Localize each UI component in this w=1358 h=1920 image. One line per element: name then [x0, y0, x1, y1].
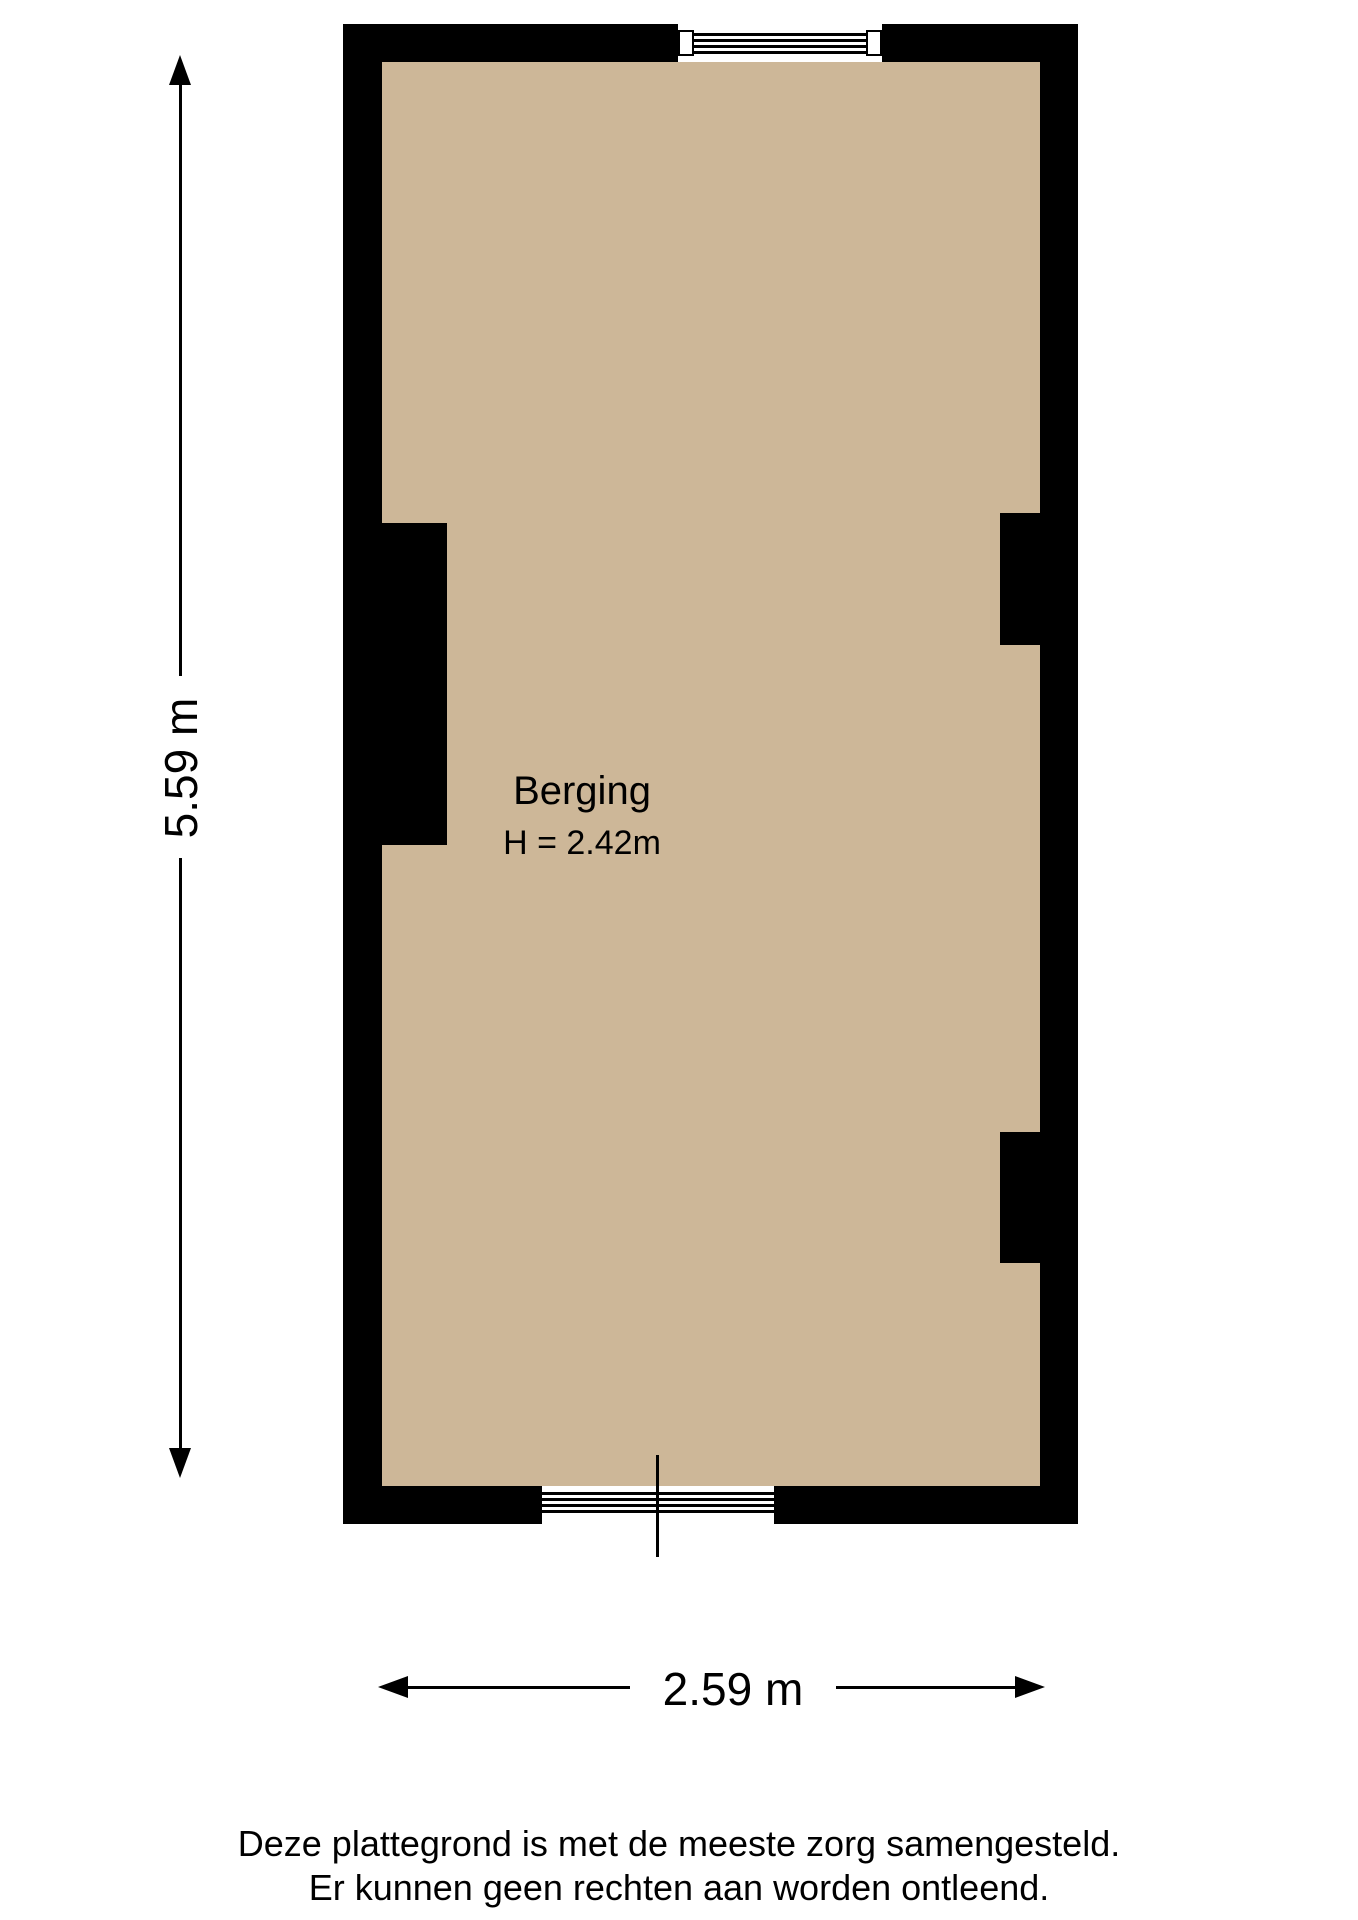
- window-pane-line: [694, 51, 866, 54]
- wall-pier-right-lower: [1000, 1132, 1078, 1263]
- room-label-group: Berging H = 2.42m: [432, 768, 732, 863]
- dim-arrow-down-icon: [169, 1448, 191, 1478]
- disclaimer: Deze plattegrond is met de meeste zorg s…: [0, 1822, 1358, 1910]
- window-pane-line: [694, 39, 866, 42]
- wall-pier-right-upper: [1000, 513, 1078, 645]
- dim-label-vertical: 5.59 m: [154, 698, 208, 839]
- disclaimer-line2: Er kunnen geen rechten aan worden ontlee…: [0, 1866, 1358, 1910]
- dim-arrow-right-icon: [1015, 1676, 1045, 1698]
- room-height-label: H = 2.42m: [432, 824, 732, 863]
- door-axis-line: [656, 1455, 659, 1557]
- dim-line-vertical: [179, 858, 182, 1450]
- dim-line-horizontal: [406, 1686, 630, 1689]
- window-frame-post: [866, 30, 882, 56]
- dim-line-horizontal: [836, 1686, 1017, 1689]
- floorplan-canvas: 5.59 m 2.59 m Berging H = 2.42m Deze pla…: [0, 0, 1358, 1920]
- room-name-label: Berging: [432, 768, 732, 814]
- window-pane-line: [694, 33, 866, 36]
- dim-arrow-left-icon: [378, 1676, 408, 1698]
- window-pane-line: [694, 45, 866, 48]
- window-frame-post: [678, 30, 694, 56]
- dim-arrow-up-icon: [169, 55, 191, 85]
- window-top: [678, 24, 882, 62]
- dim-label-horizontal: 2.59 m: [663, 1662, 804, 1716]
- disclaimer-line1: Deze plattegrond is met de meeste zorg s…: [0, 1822, 1358, 1866]
- dim-line-vertical: [179, 83, 182, 676]
